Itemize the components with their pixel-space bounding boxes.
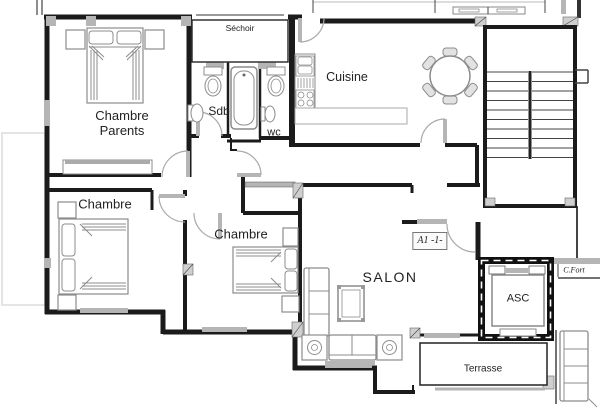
neighbour-sofa-icon xyxy=(560,331,588,401)
door-chambre-2 xyxy=(159,194,185,222)
top-window xyxy=(453,7,525,14)
door-cuisine xyxy=(421,119,447,143)
staircase xyxy=(485,27,588,206)
door-chambre-parents xyxy=(162,151,190,177)
kitchen-counter-icon xyxy=(295,54,407,124)
cuisine-label: Cuisine xyxy=(326,70,368,84)
apartment-id-tag: A1 -1- xyxy=(412,232,447,250)
chambre-3-label: Chambre xyxy=(214,228,267,243)
wc-label: wc xyxy=(267,127,280,140)
terrasse-label: Terrasse xyxy=(464,363,502,375)
toilet-icon xyxy=(267,67,285,96)
chambre-2-label: Chambre xyxy=(78,198,131,213)
chambre-parents-label: Chambre Parents xyxy=(95,109,148,139)
side-table-icon xyxy=(377,335,402,360)
floor-plan: Séchoir Chambre Parents Sdb wc Cuisine C… xyxy=(0,0,600,416)
sofa-two-seat-icon xyxy=(325,335,376,365)
dining-table-icon xyxy=(421,48,478,104)
side-table-icon xyxy=(302,335,327,360)
door-wc xyxy=(237,151,261,177)
asc-label: ASC xyxy=(507,293,530,306)
washbasin-icon xyxy=(261,106,275,122)
wardrobe-icon xyxy=(63,160,152,174)
washbasin-icon xyxy=(188,104,203,122)
sdb-label: Sdb xyxy=(208,105,229,119)
sofa-three-seat-icon xyxy=(304,268,329,336)
bathtub-icon xyxy=(231,67,257,129)
sechoir-room xyxy=(192,15,288,62)
salon-label: SALON xyxy=(363,269,418,285)
single-bed-left-icon xyxy=(58,202,128,310)
coffee-table-icon xyxy=(337,285,365,322)
double-bed-icon xyxy=(66,28,164,103)
faint-balcony-outline xyxy=(2,133,45,305)
sechoir-label: Séchoir xyxy=(226,24,255,34)
toilet-icon xyxy=(204,67,222,96)
hall-partition-wall xyxy=(245,182,295,187)
c-fort-label: C.Fort xyxy=(563,265,585,274)
